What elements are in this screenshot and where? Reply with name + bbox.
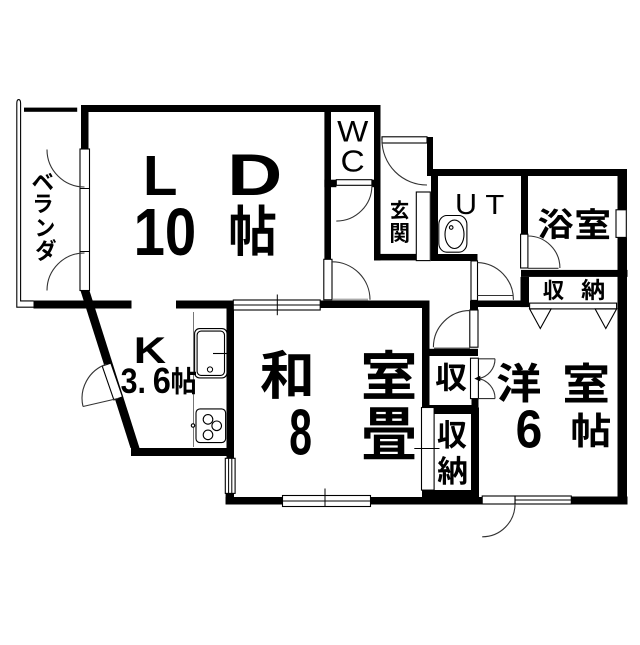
- svg-text:6: 6: [153, 361, 171, 401]
- svg-text:U: U: [455, 189, 477, 221]
- svg-text:C: C: [341, 144, 365, 178]
- svg-text:8: 8: [289, 396, 312, 469]
- svg-text:6: 6: [516, 399, 543, 459]
- svg-text:W: W: [337, 115, 368, 148]
- svg-text:10: 10: [134, 195, 197, 270]
- svg-text:3.: 3.: [121, 361, 146, 400]
- svg-text:D: D: [227, 144, 282, 208]
- svg-text:T: T: [485, 189, 504, 220]
